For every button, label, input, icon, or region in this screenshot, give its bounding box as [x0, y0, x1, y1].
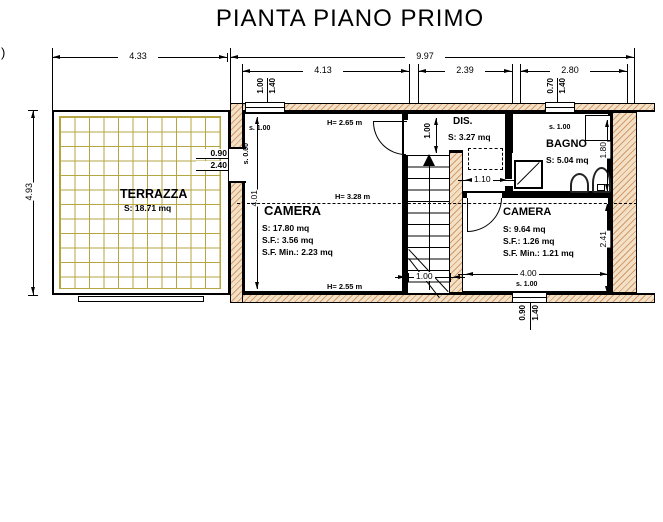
dim-label-bagno-depth: 1.80 [597, 142, 610, 159]
dim-arrow [31, 287, 35, 294]
camera2-sf-label: S.F.: 1.26 mq [503, 237, 555, 246]
dim-arrow [419, 69, 426, 73]
dis-area-label: S: 3.27 mq [448, 133, 491, 142]
camera2-area-label: S: 9.64 mq [503, 225, 546, 234]
dim-arrow [219, 55, 226, 59]
camera1-h-bottom-label: H= 2.55 m [327, 283, 362, 291]
dim-label-room2-width: 2.80 [550, 66, 590, 76]
shower-icon [514, 160, 543, 189]
dim-tick [408, 273, 409, 282]
dim-label-camera1-depth: 4.01 [248, 190, 261, 207]
camera1-room-label: CAMERA [264, 204, 321, 218]
camera1-sfmin-label: S.F. Min.: 2.23 mq [262, 248, 333, 257]
stairs-up-arrow-icon [423, 154, 435, 166]
window-glass-line [546, 107, 574, 108]
extension-line [409, 64, 410, 103]
camera1-area-label: S: 17.80 mq [262, 224, 309, 233]
wall-jamb [463, 191, 467, 198]
terrace-door-height-label: 2.40 [196, 161, 228, 171]
terrazza-room-label: TERRAZZA [120, 188, 187, 202]
extension-line [634, 48, 635, 103]
dim-arrow [231, 55, 238, 59]
dim-arrow [521, 69, 528, 73]
dim-arrow [53, 55, 60, 59]
skylight-dashed-rect [468, 148, 503, 170]
dim-label-mid-width: 2.39 [445, 66, 485, 76]
bagno-window-sill-label: s. 1.00 [549, 124, 570, 132]
dim-line-left-height [33, 110, 34, 295]
camera1-h-top-label: H= 2.65 m [327, 119, 362, 127]
dim-arrow [255, 282, 259, 289]
dim-label-camera2-depth: 2.41 [597, 231, 610, 248]
dim-arrow [243, 69, 250, 73]
dim-arrow [401, 69, 408, 73]
dim-arrow [398, 275, 405, 279]
dim-arrow [255, 117, 259, 124]
dim-label-camera2-width: 4.00 [518, 269, 539, 278]
dim-arrow [453, 275, 460, 279]
wall-bottom [230, 293, 655, 303]
dis-room-label: DIS. [453, 116, 472, 127]
window-glass-line [246, 107, 284, 108]
wall-stairs-right [449, 150, 463, 293]
floor-plan-drawing: PIANTA PIANO PRIMO ) 4.33 9.97 4.13 2.39… [0, 0, 663, 522]
win1-width-label: 1.00 [257, 78, 266, 94]
stray-mark: ) [1, 46, 5, 60]
dim-tick [450, 273, 451, 282]
dim-arrow [626, 55, 633, 59]
dim-arrow [605, 204, 609, 211]
dim-arrow [605, 286, 609, 293]
dim-label-building-width: 9.97 [405, 52, 445, 62]
terrace-door-width-label: 0.90 [196, 149, 228, 159]
bagno-door-leaf [505, 152, 512, 179]
terrazza-area-label: S: 18.71 mq [124, 204, 171, 213]
dim-line-camera2-depth [607, 204, 608, 293]
camera1-door-leaf [373, 121, 407, 122]
camera1-window-sill-label: s. 1.00 [249, 125, 270, 133]
dim-label-stairs-width: 1.00 [414, 272, 435, 281]
wc-cistern [597, 184, 605, 191]
wall-top [230, 103, 655, 112]
wall-bagno-left-stub [505, 186, 511, 195]
dim-label-dis-width: 1.10 [472, 175, 493, 184]
dim-tick [227, 53, 228, 62]
dim-arrow [466, 272, 473, 276]
win3-height-label: 1.40 [532, 305, 541, 321]
bidet-icon [570, 173, 589, 193]
dim-arrow [500, 178, 507, 182]
dim-arrow [31, 111, 35, 118]
wall-bagno-left-upper [505, 112, 511, 153]
extension-line [520, 64, 521, 103]
bagno-room-label: BAGNO [546, 138, 587, 150]
camera1-sf-label: S.F.: 3.56 mq [262, 236, 314, 245]
dim-arrow [465, 178, 472, 182]
camera2-room-label: CAMERA [503, 206, 551, 218]
page-title: PIANTA PIANO PRIMO [150, 6, 550, 32]
dim-label-left-height: 4.93 [23, 183, 37, 201]
extension-line [52, 48, 53, 110]
dim-arrow [434, 118, 438, 125]
dim-tick [28, 295, 38, 296]
dim-arrow [605, 184, 609, 191]
extension-line [512, 64, 513, 103]
extension-line [242, 64, 243, 103]
dim-arrow [619, 69, 626, 73]
dim-arrow [600, 272, 607, 276]
camera2-sfmin-label: S.F. Min.: 1.21 mq [503, 249, 574, 258]
win2-width-label: 0.70 [547, 78, 556, 94]
dim-arrow [605, 120, 609, 127]
dim-label-room1-width: 4.13 [303, 66, 343, 76]
win2-height-label: 1.40 [559, 78, 568, 94]
camera2-window-sill-label: s. 1.00 [516, 281, 537, 289]
camera1-h-ridge-label: H= 3.28 m [333, 193, 372, 201]
extension-line [418, 64, 419, 103]
bagno-area-label: S: 5.04 mq [546, 156, 589, 165]
extension-line [627, 64, 628, 103]
camera1-door-sill-label: s. 0.00 [243, 143, 251, 164]
dim-label-landing: 1.00 [424, 123, 433, 139]
terrace-railing [78, 296, 204, 302]
win1-height-label: 1.40 [269, 78, 278, 94]
dim-arrow [504, 69, 511, 73]
window-glass-line [513, 297, 546, 298]
dim-arrow [434, 146, 438, 153]
extension-line [230, 48, 231, 103]
win3-width-label: 0.90 [519, 305, 528, 321]
dim-label-terrace-width: 4.33 [118, 52, 158, 62]
